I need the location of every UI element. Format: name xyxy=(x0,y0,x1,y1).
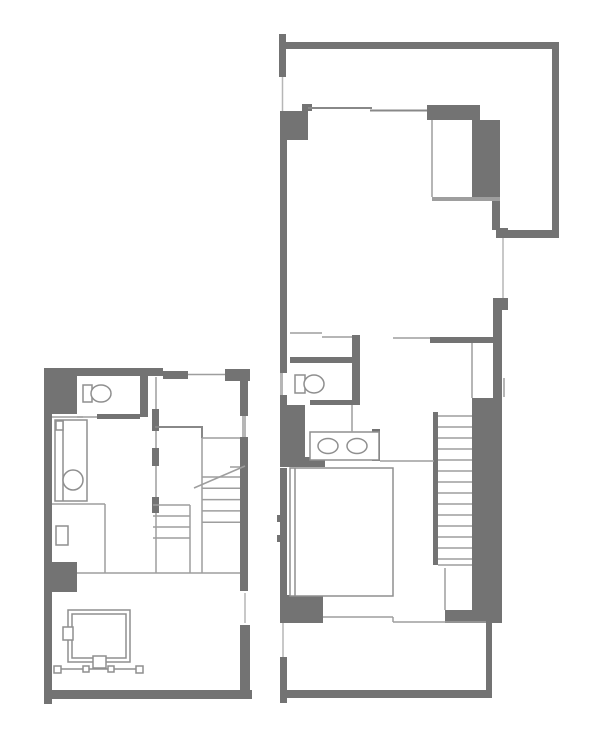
wall-bottom-left-pier xyxy=(280,595,323,623)
washbasin-right xyxy=(347,439,367,454)
floor-plan-page xyxy=(0,0,600,746)
wall-top-left-stub xyxy=(279,34,286,77)
kitchen-sink xyxy=(63,470,83,490)
wall-bottom-stub xyxy=(44,699,52,704)
window-tick xyxy=(277,535,280,542)
stair-treads xyxy=(438,416,472,559)
toilet-bowl xyxy=(304,375,324,393)
double-bed xyxy=(290,468,393,596)
floor-plan-svg xyxy=(0,0,600,746)
wall-top-step xyxy=(163,371,188,379)
washbasin-left xyxy=(318,439,338,454)
wall-top-right-block xyxy=(225,369,250,381)
wall-right-lower xyxy=(240,625,250,691)
toilet-side-wall xyxy=(352,335,360,402)
wall-left-block xyxy=(280,111,308,140)
toilet-top-wall xyxy=(290,357,352,363)
side-box xyxy=(56,526,68,545)
window-tick xyxy=(277,515,280,522)
low-table-inner xyxy=(72,614,126,658)
toilet-bottom-wall xyxy=(310,400,360,405)
stair-treads xyxy=(202,477,240,522)
stair-left-rail xyxy=(433,412,438,565)
rail-post xyxy=(54,666,61,673)
wall-left xyxy=(44,414,52,562)
wall-right xyxy=(552,49,559,238)
window-left xyxy=(280,373,283,395)
wall-right-upper xyxy=(240,381,248,416)
stair-bottom-block xyxy=(445,610,472,623)
hall-wall xyxy=(430,337,493,343)
wall-left-pier xyxy=(280,405,305,458)
bottom-attachment-box xyxy=(93,656,106,668)
wall-column xyxy=(492,201,500,230)
wall-left xyxy=(280,395,287,405)
wall-toilet-right xyxy=(140,374,148,417)
window-right-upper xyxy=(242,416,246,437)
stair-right-wall xyxy=(472,398,493,623)
rail-post xyxy=(108,666,114,672)
wall-left-lower xyxy=(280,468,287,595)
closet-bottom-bar xyxy=(432,197,500,201)
wall-toilet-bottom xyxy=(97,414,140,419)
floor-plan-right xyxy=(277,34,559,703)
balcony-bottom-wall xyxy=(282,690,492,698)
rail-post xyxy=(83,666,89,672)
faucet-box xyxy=(56,421,63,430)
closet-top-wall xyxy=(427,105,480,120)
wall-left-block xyxy=(44,368,77,414)
balcony-corner-stub xyxy=(280,690,287,703)
wall-bottom xyxy=(44,690,252,699)
toilet-bowl xyxy=(91,385,111,402)
wall-middle-seg2 xyxy=(152,448,159,466)
wall-top xyxy=(286,42,559,49)
wall-right-return xyxy=(508,230,559,238)
wall-left xyxy=(280,140,287,373)
rail-post xyxy=(136,666,143,673)
side-attachment-box xyxy=(63,627,73,640)
wall-pier xyxy=(493,298,508,310)
floor-plan-left xyxy=(44,368,252,704)
closet-right-wall xyxy=(472,120,500,201)
wall-left-lower xyxy=(44,592,52,699)
wall-right-lower xyxy=(493,310,502,623)
balcony-right-wall xyxy=(486,623,492,698)
wall-right-mid xyxy=(240,437,248,591)
wall-left-pier xyxy=(44,562,77,592)
